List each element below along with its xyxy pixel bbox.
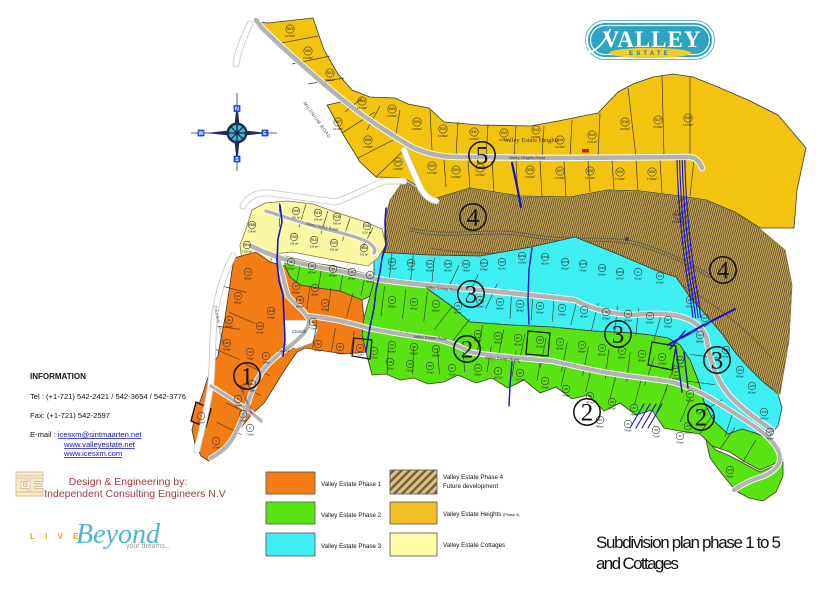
svg-text:850m²: 850m² — [602, 316, 610, 320]
svg-text:907m²: 907m² — [308, 270, 316, 274]
svg-text:91B: 91B — [315, 211, 321, 215]
svg-text:97B: 97B — [445, 262, 451, 266]
svg-text:520 m²: 520 m² — [310, 244, 319, 248]
svg-text:80: 80 — [648, 314, 652, 318]
svg-text:1533m²: 1533m² — [285, 34, 295, 38]
svg-text:1531m²: 1531m² — [587, 140, 597, 144]
svg-text:984m²: 984m² — [516, 308, 524, 312]
svg-text:1: 1 — [215, 439, 217, 443]
svg-text:13 639m²: 13 639m² — [672, 220, 685, 224]
svg-text:75: 75 — [600, 346, 604, 350]
svg-text:800m²: 800m² — [388, 349, 396, 353]
svg-text:1679m²: 1679m² — [620, 127, 630, 131]
svg-text:2: 2 — [581, 400, 594, 427]
svg-text:802m²: 802m² — [321, 307, 329, 311]
svg-text:613m²: 613m² — [256, 330, 264, 334]
svg-text:700m²: 700m² — [234, 403, 242, 407]
svg-text:170: 170 — [727, 468, 732, 472]
svg-text:1500m²: 1500m² — [451, 175, 461, 179]
svg-text:24: 24 — [476, 366, 480, 370]
svg-text:1128m²: 1128m² — [387, 266, 396, 270]
svg-text:57: 57 — [434, 347, 438, 351]
svg-text:504: 504 — [359, 99, 365, 103]
svg-text:Church: Church — [292, 329, 307, 334]
svg-text:49: 49 — [350, 270, 354, 274]
svg-text:48: 48 — [313, 286, 317, 290]
svg-text:1533m²: 1533m² — [683, 123, 693, 127]
svg-text:83A: 83A — [677, 358, 683, 362]
svg-text:527: 527 — [557, 169, 563, 173]
svg-text:Fax: (+1-721) 542-2597: Fax: (+1-721) 542-2597 — [30, 411, 110, 420]
svg-text:878m²: 878m² — [480, 267, 488, 271]
svg-text:800m²: 800m² — [366, 279, 374, 283]
svg-text:930m²: 930m² — [558, 312, 566, 316]
svg-text:800m²: 800m² — [556, 346, 564, 350]
svg-text:ESTATE: ESTATE — [629, 51, 671, 57]
svg-text:800m²: 800m² — [618, 355, 626, 359]
svg-text:749m²: 749m² — [336, 351, 344, 355]
svg-text:74: 74 — [582, 308, 586, 312]
svg-text:807m²: 807m² — [444, 268, 452, 272]
svg-text:54: 54 — [434, 302, 438, 306]
svg-text:1510m²: 1510m² — [303, 56, 313, 60]
svg-text:7: 7 — [200, 414, 202, 418]
svg-text:700m²: 700m² — [624, 428, 632, 432]
svg-text:36: 36 — [654, 428, 658, 432]
svg-text:511: 511 — [471, 130, 477, 134]
svg-text:45: 45 — [331, 267, 335, 271]
svg-text:44: 44 — [236, 294, 240, 298]
svg-text:92B: 92B — [334, 215, 340, 219]
svg-text:Valley Heights Road: Valley Heights Road — [509, 155, 545, 160]
svg-text:802m²: 802m² — [686, 398, 694, 402]
svg-text:E-mail : icesxm@sintmaarten.ne: E-mail : icesxm@sintmaarten.net — [30, 430, 142, 439]
svg-text:798m²: 798m² — [766, 436, 774, 440]
svg-text:800m²: 800m² — [736, 374, 744, 378]
svg-text:700m²: 700m² — [386, 366, 394, 370]
svg-text:512: 512 — [501, 131, 507, 135]
svg-text:885m²: 885m² — [580, 314, 588, 318]
svg-text:502: 502 — [305, 49, 311, 53]
svg-text:728m²: 728m² — [239, 418, 247, 422]
svg-text:510: 510 — [440, 127, 446, 131]
svg-text:1050 m²: 1050 m² — [362, 230, 372, 234]
svg-text:1100m²: 1100m² — [517, 260, 526, 264]
svg-text:800m²: 800m² — [638, 358, 646, 362]
svg-text:722m²: 722m² — [356, 352, 364, 356]
svg-text:and Cottages: and Cottages — [596, 554, 679, 573]
svg-text:800m²: 800m² — [432, 353, 440, 357]
svg-text:82: 82 — [666, 318, 670, 322]
svg-text:960m²: 960m² — [536, 310, 544, 314]
svg-text:530: 530 — [649, 170, 655, 174]
svg-text:L I V E: L I V E — [30, 531, 82, 541]
svg-text:950m²: 950m² — [646, 320, 654, 324]
svg-text:44: 44 — [294, 284, 298, 288]
svg-text:52: 52 — [412, 300, 416, 304]
svg-text:3: 3 — [711, 348, 724, 375]
svg-text:817m²: 817m² — [498, 266, 506, 270]
svg-text:67: 67 — [516, 336, 520, 340]
svg-text:501: 501 — [287, 27, 293, 31]
svg-text:528 m²: 528 m² — [290, 241, 299, 245]
svg-text:85: 85 — [674, 370, 678, 374]
svg-text:www.valleyestate.net: www.valleyestate.net — [63, 440, 136, 449]
svg-text:524: 524 — [453, 168, 459, 172]
svg-text:95A: 95A — [389, 260, 395, 264]
svg-text:19: 19 — [408, 362, 412, 366]
svg-text:15: 15 — [338, 345, 342, 349]
svg-text:819m²: 819m² — [598, 272, 606, 276]
svg-text:Future development: Future development — [443, 483, 498, 490]
svg-text:Tel : (+1-721) 542-2421 / 542-: Tel : (+1-721) 542-2421 / 542-3654 / 542… — [30, 392, 186, 401]
svg-text:800m²: 800m² — [244, 276, 252, 280]
svg-text:1528m²: 1528m² — [653, 125, 663, 129]
svg-text:41: 41 — [368, 273, 372, 277]
svg-text:64: 64 — [498, 300, 502, 304]
svg-text:73: 73 — [246, 270, 250, 274]
svg-text:733m²: 733m² — [246, 432, 254, 436]
svg-text:519: 519 — [675, 213, 681, 217]
svg-text:620m²: 620m² — [225, 324, 233, 328]
svg-text:805m²: 805m² — [410, 351, 418, 355]
svg-text:581 m²: 581 m² — [292, 215, 301, 219]
svg-text:529: 529 — [617, 170, 623, 174]
svg-text:Valley Estate Heights: Valley Estate Heights — [503, 137, 559, 144]
svg-text:8: 8 — [237, 397, 239, 401]
svg-text:920m²: 920m² — [287, 266, 295, 270]
svg-text:694m²: 694m² — [314, 348, 322, 352]
svg-text:785m²: 785m² — [608, 406, 616, 410]
svg-text:800m²: 800m² — [494, 340, 502, 344]
svg-text:763m²: 763m² — [726, 474, 734, 478]
svg-text:S: S — [235, 157, 239, 163]
svg-text:31: 31 — [632, 406, 636, 410]
svg-text:77: 77 — [620, 349, 624, 353]
svg-text:14: 14 — [316, 342, 320, 346]
svg-text:520: 520 — [429, 164, 435, 168]
svg-text:1584m²: 1584m² — [525, 175, 535, 179]
svg-text:63: 63 — [476, 332, 480, 336]
svg-text:900m²: 900m² — [388, 304, 396, 308]
svg-text:95B: 95B — [408, 261, 414, 265]
svg-text:2: 2 — [695, 405, 708, 432]
svg-text:1533m²: 1533m² — [427, 171, 437, 175]
svg-text:1047m²: 1047m² — [759, 416, 768, 420]
svg-text:30: 30 — [610, 400, 614, 404]
svg-text:106A: 106A — [598, 266, 606, 270]
svg-text:65: 65 — [496, 334, 500, 338]
svg-text:506: 506 — [414, 120, 420, 124]
svg-text:Valley Estate Cottages: Valley Estate Cottages — [443, 542, 505, 549]
svg-text:120: 120 — [697, 333, 702, 337]
svg-text:73: 73 — [580, 343, 584, 347]
svg-text:3: 3 — [612, 322, 625, 349]
svg-text:Valley Estate Heights (Phase 5: Valley Estate Heights (Phase 5) — [443, 511, 520, 518]
svg-text:1559m²: 1559m² — [555, 176, 565, 180]
svg-text:W: W — [198, 131, 204, 137]
svg-text:your dreams...: your dreams... — [126, 543, 171, 550]
svg-text:89A: 89A — [244, 243, 251, 247]
svg-text:800m²: 800m² — [432, 308, 440, 312]
svg-text:25: 25 — [518, 371, 522, 375]
svg-text:45: 45 — [298, 298, 302, 302]
svg-text:700m²: 700m² — [197, 420, 205, 424]
svg-text:E: E — [263, 131, 267, 137]
svg-text:17: 17 — [372, 349, 376, 353]
svg-text:11A: 11A — [257, 324, 263, 328]
svg-text:833m²: 833m² — [686, 304, 694, 308]
svg-text:18: 18 — [388, 360, 392, 364]
svg-text:126: 126 — [761, 410, 766, 414]
svg-text:1713m²: 1713m² — [585, 176, 595, 180]
svg-text:960m²: 960m² — [496, 306, 504, 310]
svg-text:3: 3 — [465, 282, 478, 309]
svg-text:56: 56 — [456, 304, 460, 308]
svg-text:564 m²: 564 m² — [314, 217, 323, 221]
svg-text:37: 37 — [678, 434, 682, 438]
svg-text:10: 10 — [248, 350, 252, 354]
svg-text:786m²: 786m² — [462, 268, 470, 272]
svg-text:1052: 1052 — [542, 255, 549, 259]
svg-text:1377m²: 1377m² — [515, 377, 524, 381]
svg-text:Independent Consulting Enginee: Independent Consulting Engineers N.V — [44, 488, 226, 500]
svg-text:114: 114 — [658, 274, 663, 278]
svg-text:928m²: 928m² — [474, 372, 482, 376]
svg-text:127: 127 — [767, 430, 772, 434]
svg-text:824m²: 824m² — [656, 280, 664, 284]
svg-text:Valley Estate Phase 3: Valley Estate Phase 3 — [321, 543, 382, 550]
svg-text:507: 507 — [335, 120, 341, 124]
svg-text:91A: 91A — [311, 238, 318, 242]
svg-text:Valley Estate Phase 2: Valley Estate Phase 2 — [321, 512, 382, 519]
svg-text:1074: 1074 — [562, 260, 569, 264]
svg-text:896m²: 896m² — [596, 424, 604, 428]
svg-text:854m²: 854m² — [223, 347, 231, 351]
svg-text:36: 36 — [289, 260, 293, 264]
svg-text:516: 516 — [622, 120, 628, 124]
svg-text:1042m²: 1042m² — [683, 430, 692, 434]
svg-text:525A: 525A — [518, 254, 526, 258]
svg-text:4: 4 — [717, 258, 730, 285]
svg-text:69: 69 — [538, 338, 542, 342]
svg-text:1014: 1014 — [481, 261, 488, 265]
svg-text:841m²: 841m² — [234, 300, 242, 304]
svg-text:714 m²: 714 m² — [248, 229, 257, 233]
svg-text:800m²: 800m² — [311, 292, 319, 296]
svg-text:5: 5 — [476, 143, 489, 170]
svg-text:750m²: 750m² — [246, 356, 254, 360]
svg-text:118: 118 — [269, 309, 274, 313]
svg-text:753m²: 753m² — [426, 370, 434, 374]
svg-text:1618m²: 1618m² — [333, 127, 343, 131]
svg-text:78: 78 — [626, 312, 630, 316]
svg-text:1500m²: 1500m² — [475, 173, 485, 177]
svg-text:1501m²: 1501m² — [325, 78, 335, 82]
svg-text:124: 124 — [737, 368, 742, 372]
svg-text:50: 50 — [390, 298, 394, 302]
svg-text:81: 81 — [660, 355, 664, 359]
svg-text:800m²: 800m² — [578, 349, 586, 353]
svg-text:N: N — [235, 107, 239, 113]
svg-text:92A: 92A — [331, 241, 338, 245]
svg-text:98A: 98A — [463, 262, 469, 266]
svg-text:503: 503 — [327, 71, 333, 75]
svg-text:727m²: 727m² — [212, 445, 220, 449]
svg-text:1500m²: 1500m² — [412, 127, 422, 131]
svg-text:35: 35 — [626, 422, 630, 426]
svg-text:1549m²: 1549m² — [469, 137, 479, 141]
svg-text:720m²: 720m² — [652, 434, 660, 438]
svg-text:55: 55 — [412, 345, 416, 349]
svg-text:642 m²: 642 m² — [330, 247, 339, 251]
svg-text:602m²: 602m² — [701, 322, 709, 326]
svg-text:731m²: 731m² — [370, 355, 378, 359]
svg-text:4: 4 — [467, 205, 480, 232]
svg-text:734m²: 734m² — [541, 385, 549, 389]
svg-text:11: 11 — [636, 270, 639, 274]
svg-text:750m²: 750m² — [309, 326, 317, 330]
svg-text:29: 29 — [588, 394, 592, 398]
svg-text:800m²: 800m² — [696, 339, 704, 343]
svg-text:66: 66 — [518, 302, 522, 306]
svg-text:821m²: 821m² — [536, 344, 544, 348]
svg-text:803m²: 803m² — [348, 276, 356, 280]
svg-text:800m²: 800m² — [296, 304, 304, 308]
svg-text:801m²: 801m² — [514, 342, 522, 346]
svg-text:76: 76 — [604, 310, 608, 314]
svg-text:720m²: 720m² — [262, 360, 270, 364]
svg-text:800m²: 800m² — [672, 376, 680, 380]
svg-text:823m²: 823m² — [426, 268, 434, 272]
svg-text:41: 41 — [227, 318, 231, 322]
svg-text:16: 16 — [358, 346, 362, 350]
svg-text:526: 526 — [527, 168, 533, 172]
svg-text:www.icesxm.com: www.icesxm.com — [63, 449, 122, 458]
svg-text:797m²: 797m² — [407, 267, 415, 271]
svg-text:800m²: 800m² — [454, 310, 462, 314]
svg-text:861m²: 861m² — [541, 261, 549, 265]
svg-text:831m²: 831m² — [561, 266, 569, 270]
svg-text:801m²: 801m² — [598, 352, 606, 356]
svg-text:Valley Estate Phase 4: Valley Estate Phase 4 — [443, 474, 504, 481]
svg-text:819m²: 819m² — [267, 315, 275, 319]
svg-text:1790m²: 1790m² — [647, 177, 657, 181]
svg-text:518: 518 — [685, 116, 691, 120]
svg-text:88B: 88B — [249, 223, 255, 227]
svg-text:47: 47 — [323, 301, 327, 305]
svg-text:528: 528 — [587, 169, 593, 173]
svg-text:97A: 97A — [427, 262, 433, 266]
svg-text:508: 508 — [365, 138, 371, 142]
svg-text:8: 8 — [497, 369, 499, 373]
svg-text:1075: 1075 — [580, 262, 587, 266]
svg-text:20: 20 — [428, 364, 432, 368]
svg-text:125: 125 — [749, 384, 754, 388]
svg-text:1719m²: 1719m² — [615, 177, 625, 181]
svg-text:517: 517 — [655, 118, 661, 122]
svg-text:1216m²: 1216m² — [555, 145, 565, 149]
svg-text:21: 21 — [450, 366, 454, 370]
svg-text:53: 53 — [390, 343, 394, 347]
svg-text:1769m²: 1769m² — [363, 145, 373, 149]
svg-text:1508m²: 1508m² — [387, 114, 397, 118]
svg-text:721m²: 721m² — [406, 368, 414, 372]
svg-text:Design & Engineering by:: Design & Engineering by: — [69, 476, 188, 488]
svg-text:72: 72 — [560, 306, 564, 310]
svg-text:516 m²: 516 m² — [360, 252, 369, 256]
svg-text:68: 68 — [538, 304, 542, 308]
svg-text:560 m²: 560 m² — [333, 221, 342, 225]
svg-text:INFORMATION: INFORMATION — [30, 372, 86, 381]
svg-text:27: 27 — [543, 379, 547, 383]
svg-text:505: 505 — [389, 107, 395, 111]
svg-text:39: 39 — [310, 264, 314, 268]
svg-text:800m²: 800m² — [292, 290, 300, 294]
svg-text:911m²: 911m² — [634, 276, 642, 280]
svg-text:13: 13 — [311, 320, 315, 324]
svg-text:1228m²: 1228m² — [657, 361, 666, 365]
svg-text:2: 2 — [249, 426, 251, 430]
svg-text:Court Dr.: Court Dr. — [278, 349, 291, 353]
svg-text:1220 m²: 1220 m² — [242, 249, 252, 253]
svg-text:93B: 93B — [364, 224, 370, 228]
svg-text:1548m²: 1548m² — [438, 134, 448, 138]
svg-text:800m²: 800m² — [624, 318, 632, 322]
svg-text:79: 79 — [640, 352, 644, 356]
svg-text:Valley Estate Phase 1: Valley Estate Phase 1 — [321, 481, 382, 488]
svg-text:90A: 90A — [291, 235, 298, 239]
svg-text:118: 118 — [703, 316, 708, 320]
svg-text:2163m²: 2163m² — [393, 167, 403, 171]
svg-text:950m²: 950m² — [664, 324, 672, 328]
svg-text:700m²: 700m² — [676, 440, 684, 444]
svg-text:87: 87 — [688, 392, 692, 396]
svg-text:2: 2 — [461, 337, 474, 364]
svg-text:802m²: 802m² — [748, 390, 756, 394]
svg-text:103: 103 — [499, 260, 504, 264]
svg-text:734m²: 734m² — [562, 393, 570, 397]
svg-text:3: 3 — [242, 412, 244, 416]
svg-text:28: 28 — [564, 387, 568, 391]
svg-text:509: 509 — [395, 160, 401, 164]
svg-text:1024m²: 1024m² — [675, 364, 684, 368]
svg-text:71: 71 — [558, 340, 562, 344]
svg-text:1057m²: 1057m² — [493, 375, 502, 379]
svg-text:780m²: 780m² — [630, 412, 638, 416]
svg-text:761m²: 761m² — [448, 372, 456, 376]
svg-text:515: 515 — [589, 133, 595, 137]
svg-text:803m²: 803m² — [329, 273, 337, 277]
svg-text:5: 5 — [265, 354, 267, 358]
svg-text:93A: 93A — [361, 246, 368, 250]
svg-text:744m²: 744m² — [579, 268, 587, 272]
svg-text:115: 115 — [688, 298, 693, 302]
svg-text:1050: 1050 — [617, 270, 624, 274]
svg-text:90B: 90B — [293, 209, 299, 213]
svg-text:905m²: 905m² — [410, 306, 418, 310]
svg-text:637m²: 637m² — [616, 276, 624, 280]
svg-text:1512m²: 1512m² — [357, 106, 367, 110]
svg-text:Subdivision plan phase 1 to 5: Subdivision plan phase 1 to 5 — [596, 533, 781, 552]
svg-text:513: 513 — [533, 128, 539, 132]
